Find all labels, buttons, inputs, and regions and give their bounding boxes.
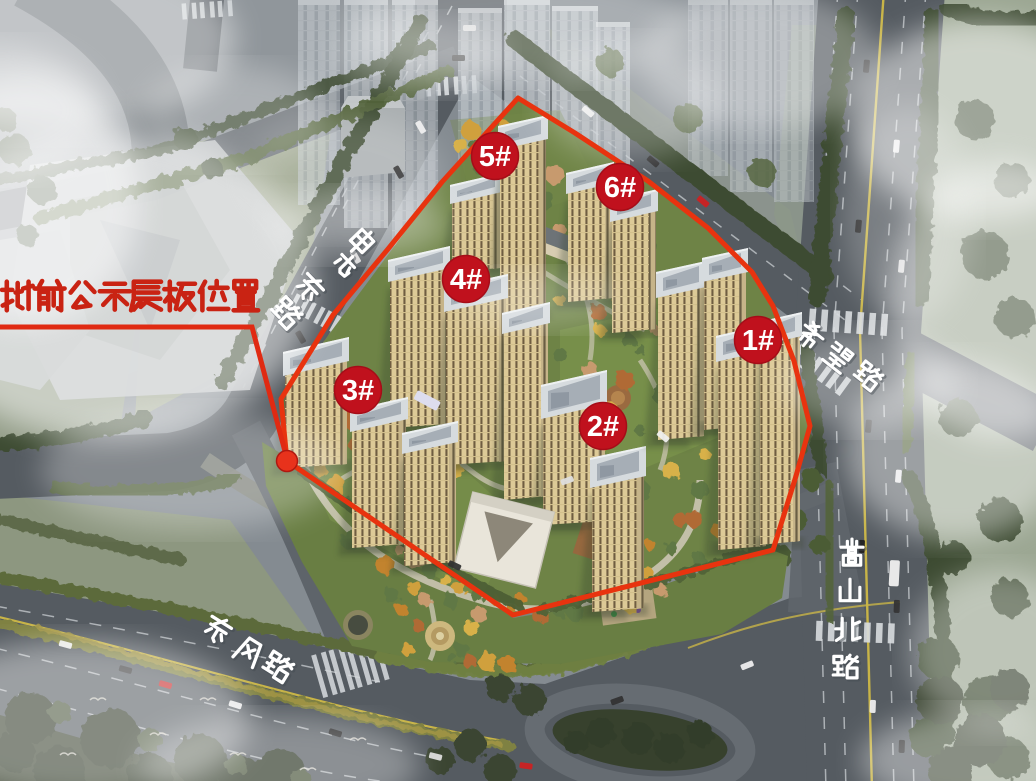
svg-text:2#: 2#	[587, 411, 619, 443]
svg-text:1#: 1#	[742, 325, 774, 357]
svg-text:5#: 5#	[479, 141, 511, 173]
svg-text:4#: 4#	[450, 264, 482, 296]
svg-text:3#: 3#	[342, 375, 374, 407]
svg-text:6#: 6#	[604, 172, 636, 204]
